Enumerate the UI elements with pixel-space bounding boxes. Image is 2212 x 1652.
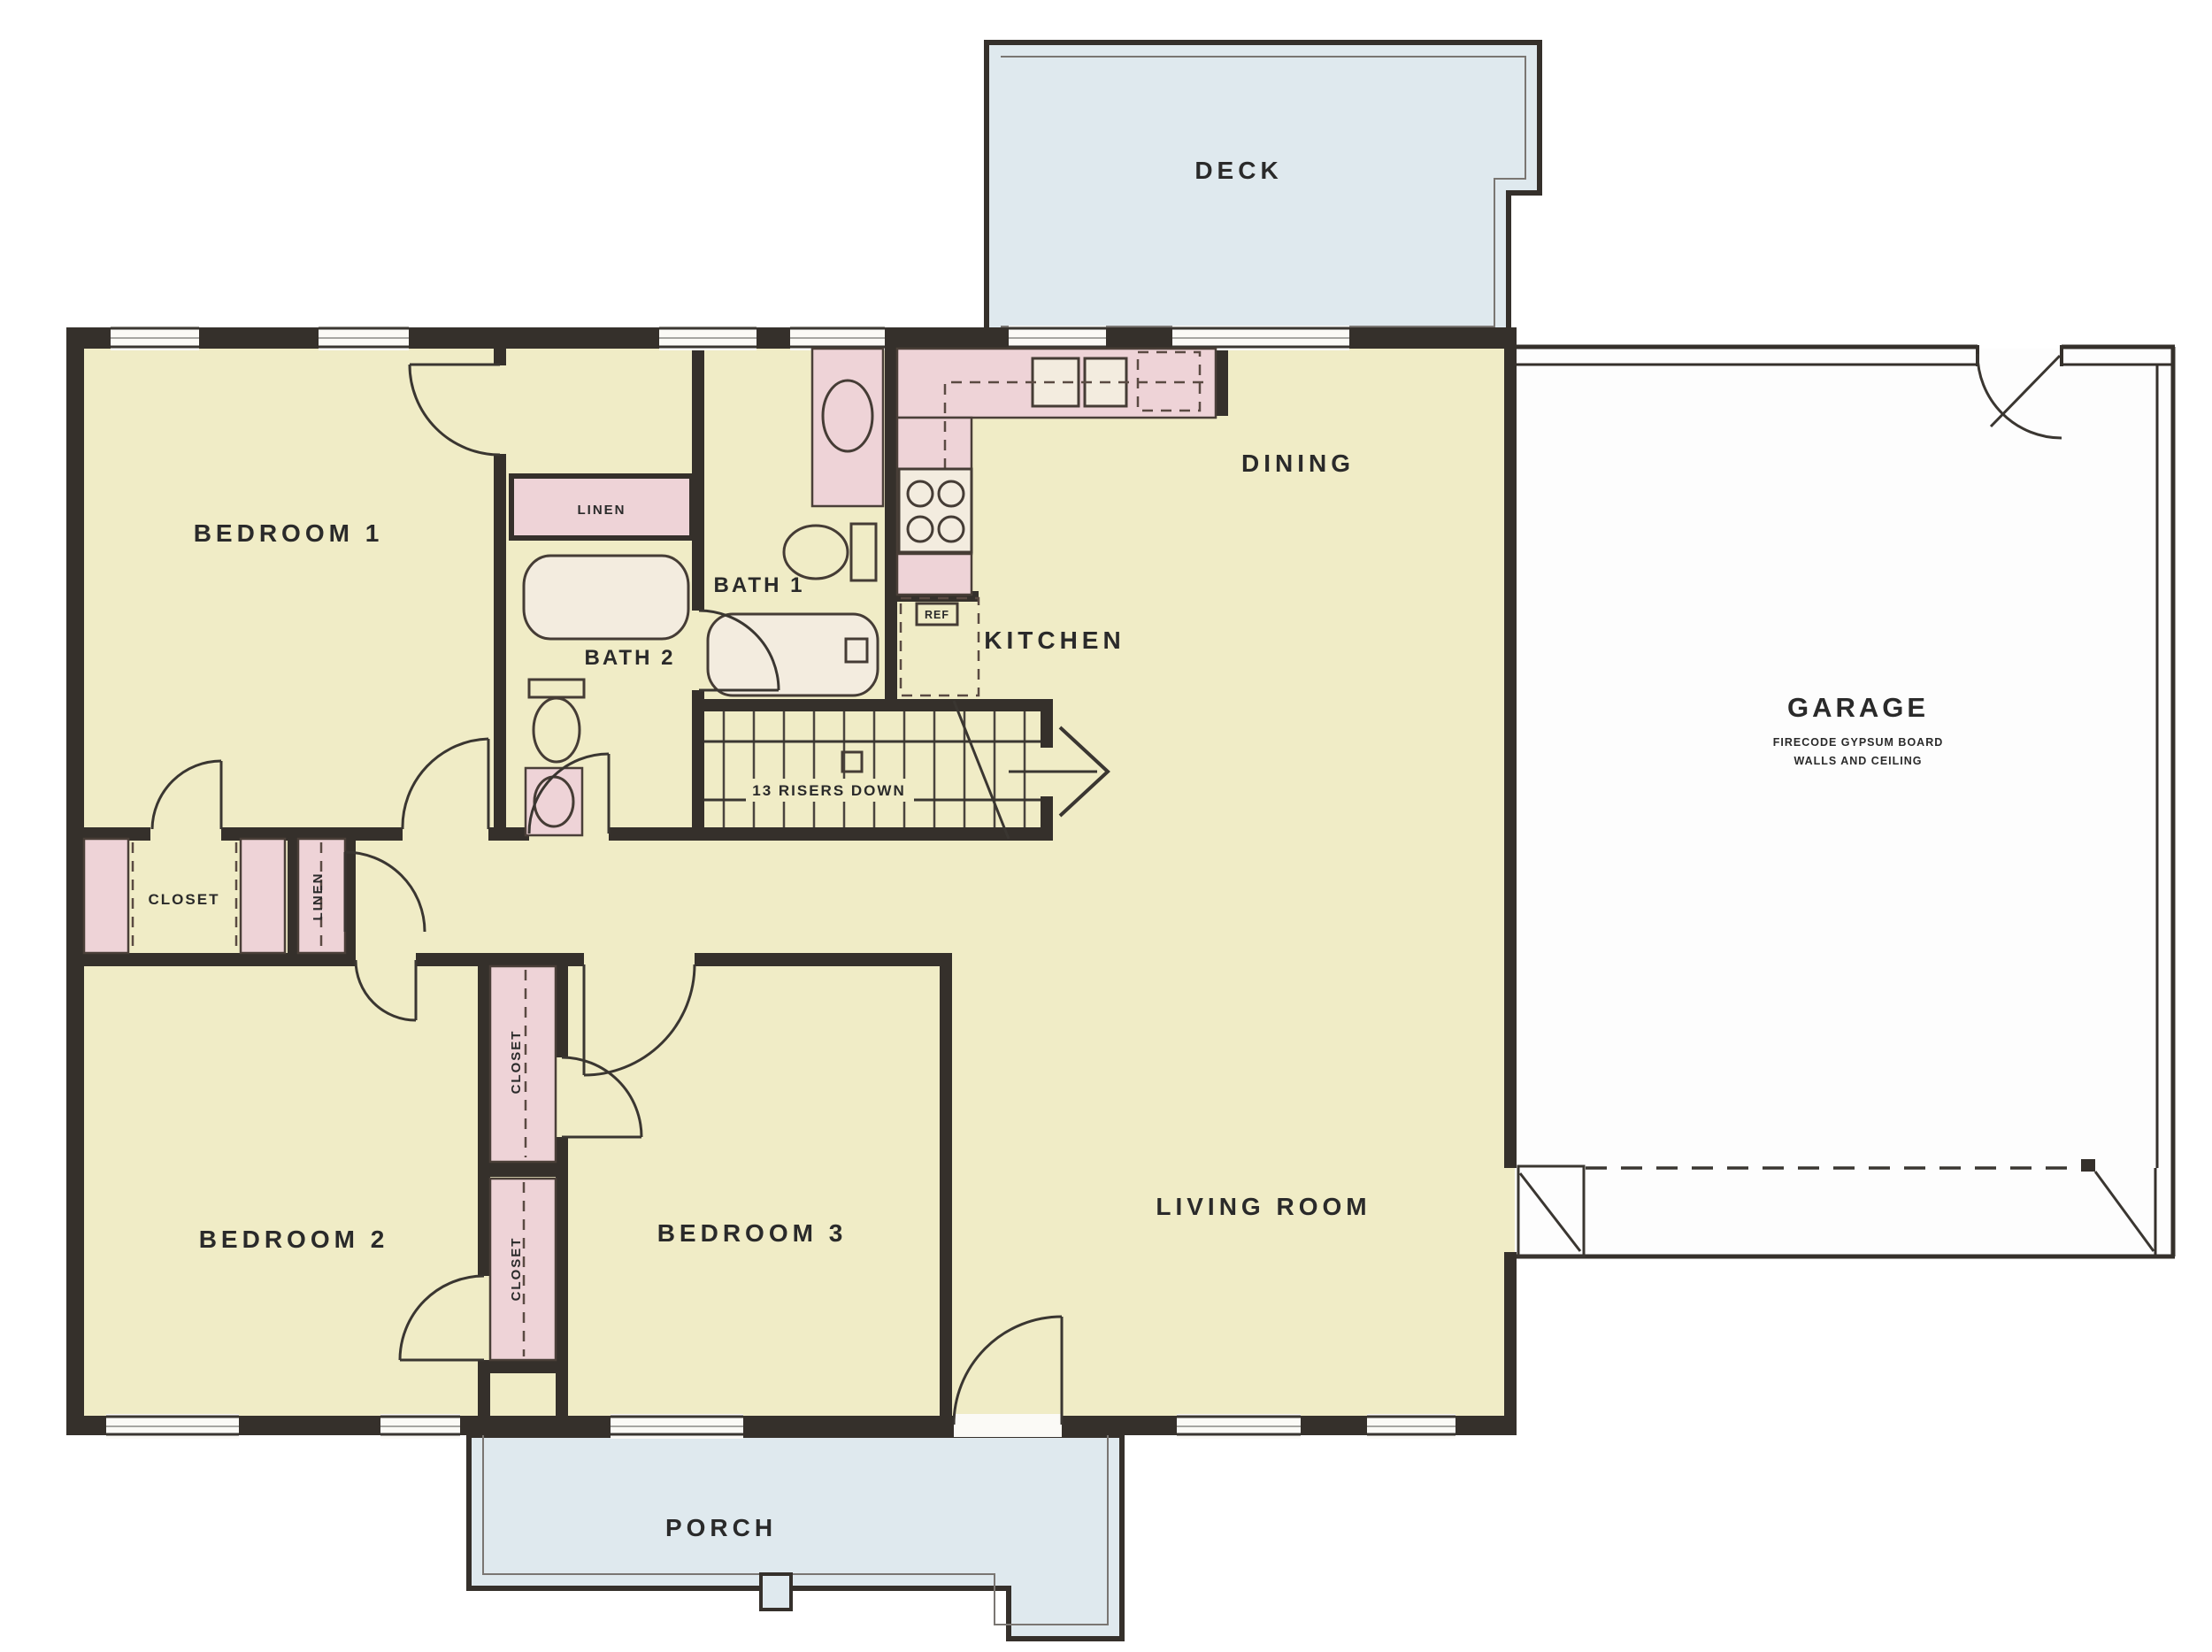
bedroom2-label: BEDROOM 2 bbox=[199, 1226, 389, 1253]
bath1-label: BATH 1 bbox=[714, 573, 805, 597]
wall bbox=[885, 349, 897, 699]
window bbox=[611, 1414, 743, 1439]
wall bbox=[1216, 349, 1228, 416]
window bbox=[111, 326, 199, 350]
wall bbox=[1062, 1416, 1177, 1435]
bedroom3-label: BEDROOM 3 bbox=[657, 1219, 848, 1247]
wall bbox=[1504, 327, 1517, 1168]
window bbox=[790, 326, 885, 350]
wall bbox=[609, 827, 1053, 841]
wall bbox=[1301, 1416, 1367, 1435]
garage-note-line2: WALLS AND CEILING bbox=[1793, 755, 1922, 767]
bath2-label: BATH 2 bbox=[585, 646, 676, 670]
wall bbox=[556, 966, 568, 1057]
wall bbox=[743, 1416, 954, 1435]
wall bbox=[556, 1137, 568, 1416]
wall bbox=[494, 349, 506, 365]
floor-plan: DECK DINING KITCHEN GARAGE FIRECODE GYPS… bbox=[0, 0, 2212, 1652]
wall bbox=[409, 327, 659, 349]
deck-label: DECK bbox=[1194, 157, 1282, 184]
deck-window bbox=[1172, 326, 1349, 350]
wall bbox=[1041, 699, 1053, 748]
window bbox=[1177, 1414, 1301, 1439]
wall bbox=[239, 1416, 380, 1435]
wall bbox=[1106, 327, 1172, 349]
wall bbox=[1504, 1252, 1517, 1435]
door-jamb bbox=[2081, 1159, 2095, 1172]
bathtub bbox=[524, 556, 688, 639]
wall bbox=[199, 327, 319, 349]
living-room-label: LIVING ROOM bbox=[1156, 1193, 1371, 1220]
wall bbox=[478, 966, 490, 1276]
bath-linen-label: LINEN bbox=[578, 503, 626, 518]
porch-area bbox=[469, 1435, 1122, 1639]
wall bbox=[460, 1416, 611, 1435]
garage-floor bbox=[1517, 349, 2175, 1256]
wall bbox=[288, 841, 298, 953]
wall bbox=[940, 966, 952, 1416]
closet-panel bbox=[241, 839, 285, 953]
floor-plan-drawing: DECK DINING KITCHEN GARAGE FIRECODE GYPS… bbox=[0, 0, 2212, 1652]
stove bbox=[899, 469, 972, 552]
window bbox=[380, 1414, 460, 1439]
wall bbox=[1349, 327, 1515, 349]
wall bbox=[1041, 796, 1053, 840]
closet-panel bbox=[84, 839, 128, 953]
wall bbox=[885, 327, 1009, 349]
wall bbox=[757, 327, 790, 349]
wall bbox=[695, 953, 952, 966]
garage-note-line1: FIRECODE GYPSUM BOARD bbox=[1773, 736, 1944, 749]
garage-label: GARAGE bbox=[1787, 692, 1929, 723]
kitchen-label: KITCHEN bbox=[984, 626, 1125, 654]
dining-label: DINING bbox=[1241, 449, 1355, 477]
wall bbox=[478, 1162, 568, 1177]
wall bbox=[478, 1360, 568, 1373]
deck-door bbox=[1009, 326, 1106, 350]
bedroom2-closet-label: CLOSET bbox=[509, 1237, 524, 1302]
deck-area bbox=[987, 42, 1540, 341]
window bbox=[1367, 1414, 1455, 1439]
porch-label: PORCH bbox=[665, 1514, 777, 1541]
wall bbox=[66, 327, 84, 1435]
refrigerator-label: REF bbox=[925, 609, 949, 621]
window bbox=[659, 326, 757, 350]
wall bbox=[416, 953, 584, 966]
kitchen-counter bbox=[897, 554, 972, 595]
porch-door-opening bbox=[954, 1414, 1062, 1437]
window bbox=[106, 1414, 239, 1439]
window bbox=[319, 326, 409, 350]
bedroom1-label: BEDROOM 1 bbox=[194, 519, 384, 547]
bedroom3-closet-label: CLOSET bbox=[509, 1030, 524, 1095]
wall bbox=[692, 699, 1053, 711]
wall bbox=[345, 841, 356, 953]
porch-post bbox=[761, 1574, 791, 1610]
wall bbox=[488, 827, 529, 841]
stairs-note-label: 13 RISERS DOWN bbox=[752, 782, 905, 799]
wall bbox=[494, 454, 506, 841]
bathtub bbox=[708, 614, 878, 695]
hall-closet-label: CLOSET bbox=[149, 891, 220, 908]
hall-linen-label: LINEN bbox=[311, 872, 326, 921]
wall bbox=[66, 953, 356, 966]
